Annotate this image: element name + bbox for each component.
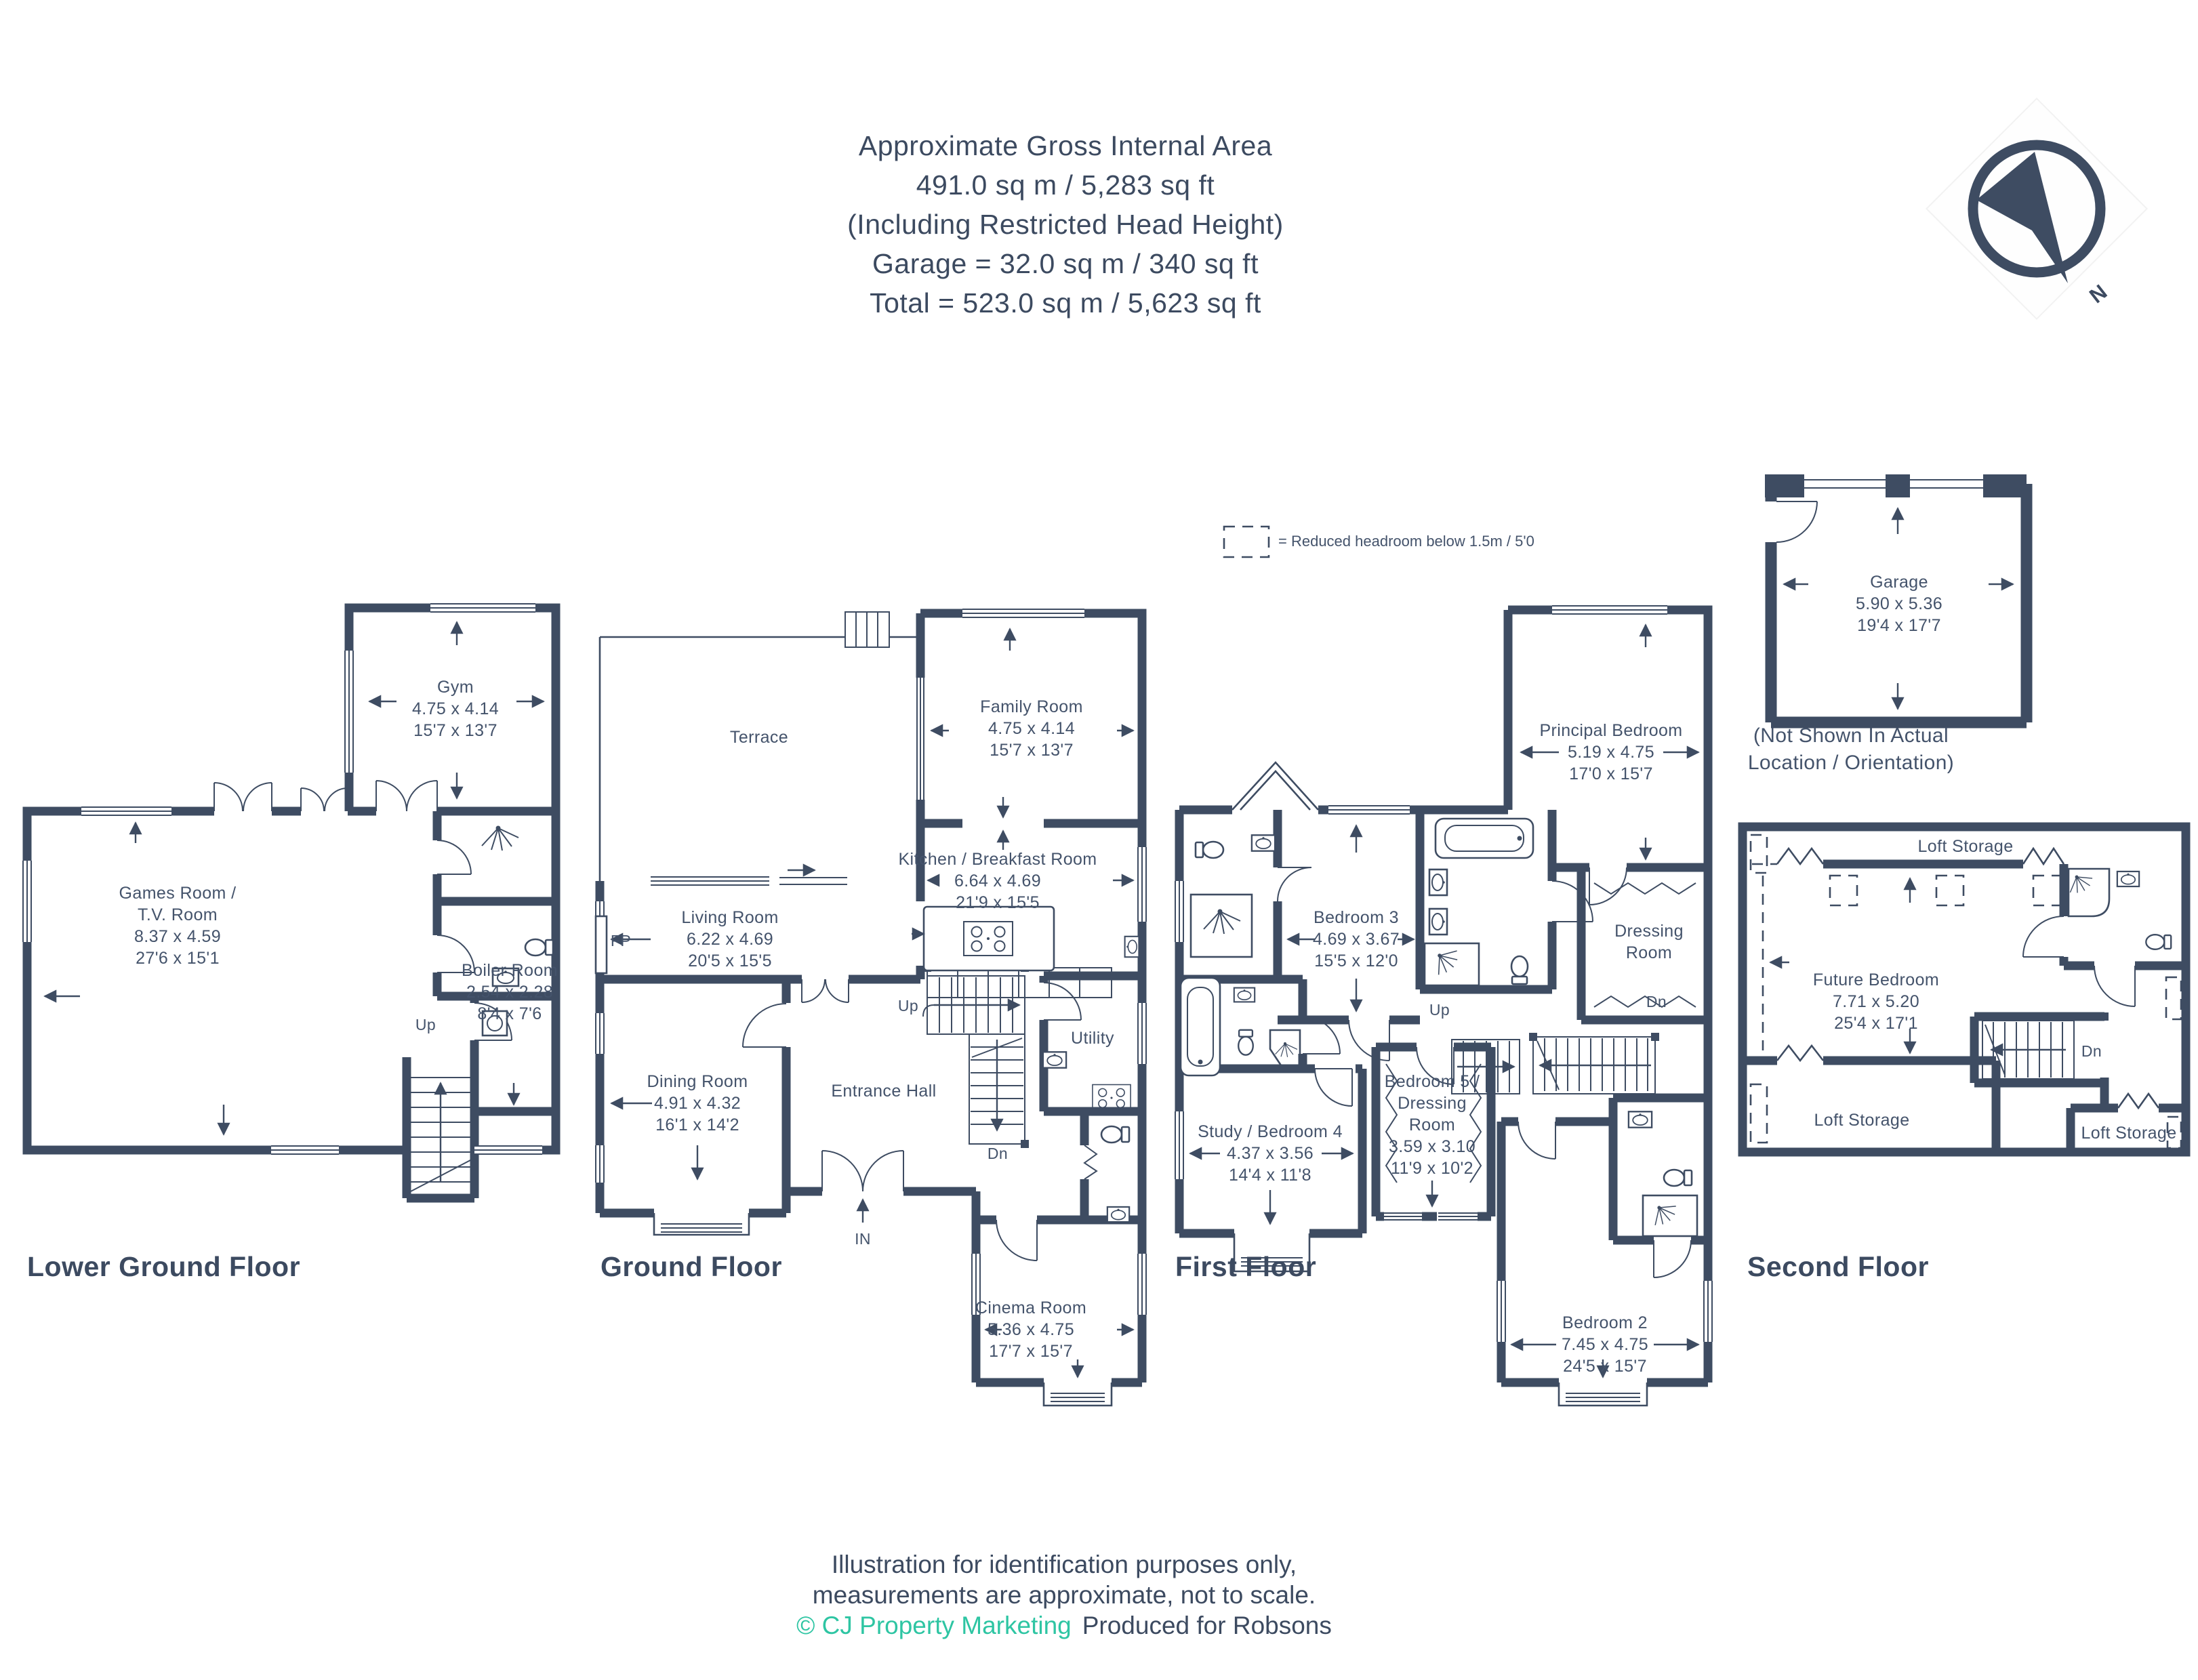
bath-icon <box>1436 819 1533 858</box>
floor-title-lower-ground: Lower Ground Floor <box>27 1251 300 1283</box>
floor-title-first: First Floor <box>1175 1251 1316 1283</box>
stairs-up-label: Up <box>1429 999 1450 1021</box>
sink-icon <box>1043 1052 1066 1067</box>
entry-in-label: IN <box>855 1228 871 1250</box>
lgf-stairs <box>408 1078 473 1191</box>
footer-produced-for: Produced for Robsons <box>1082 1612 1332 1639</box>
room-label-bedroom3: Bedroom 3 4.69 x 3.67 15'5 x 12'0 <box>1313 907 1400 972</box>
corner-shower <box>1270 1030 1300 1065</box>
room-label-bedroom2: Bedroom 2 7.45 x 4.75 24'5 x 15'7 <box>1562 1312 1648 1377</box>
floorplan-page: Approximate Gross Internal Area 491.0 sq… <box>0 0 2198 1680</box>
room-label-garage: Garage 5.90 x 5.36 19'4 x 17'7 <box>1856 571 1942 636</box>
header-line: Garage = 32.0 sq m / 340 sq ft <box>847 244 1284 283</box>
room-label-terrace: Terrace <box>730 726 788 748</box>
room-label-study-bedroom4: Study / Bedroom 4 4.37 x 3.56 14'4 x 11'… <box>1198 1121 1343 1186</box>
sink-icon <box>1429 909 1447 935</box>
room-label-bedroom5: Bedroom 5 / Dressing Room 3.59 x 3.10 11… <box>1385 1071 1480 1179</box>
room-label-cinema-room: Cinema Room 5.36 x 4.75 17'7 x 15'7 <box>975 1297 1086 1362</box>
ff-porch-gable <box>1232 762 1318 810</box>
room-label-loft-storage-br: Loft Storage <box>2081 1122 2176 1144</box>
shower-tray <box>1643 1195 1697 1236</box>
ff-stairs <box>1452 1033 1659 1094</box>
fireplace-icon <box>596 916 607 973</box>
room-label-utility: Utility <box>1071 1027 1114 1049</box>
header-line: 491.0 sq m / 5,283 sq ft <box>847 165 1284 205</box>
toilet-icon <box>1511 956 1528 984</box>
room-label-dressing-room: Dressing Room <box>1614 920 1684 964</box>
shower-icon <box>1276 1042 1297 1057</box>
shower-tray <box>1425 943 1479 985</box>
shower-tray <box>1191 895 1252 957</box>
toilet-icon <box>1238 1030 1253 1055</box>
header-line: (Including Restricted Head Height) <box>847 205 1284 244</box>
footer-disclaimer-line1: Illustration for identification purposes… <box>832 1549 1297 1580</box>
room-label-dining-room: Dining Room 4.91 x 4.32 16'1 x 14'2 <box>647 1071 748 1136</box>
shower-icon <box>482 826 518 851</box>
room-label-entrance-hall: Entrance Hall <box>831 1080 936 1102</box>
toilet-icon <box>1101 1126 1129 1143</box>
room-label-games-room: Games Room / T.V. Room 8.37 x 4.59 27'6 … <box>119 882 237 969</box>
room-label-loft-storage-bl: Loft Storage <box>1814 1109 1909 1131</box>
toilet-icon <box>1664 1170 1692 1186</box>
toilet-icon <box>1196 842 1223 858</box>
stairs-dn-label: Dn <box>988 1143 1008 1164</box>
fireplace-label: FP <box>611 930 631 951</box>
room-label-principal-bedroom: Principal Bedroom 5.19 x 4.75 17'0 x 15'… <box>1539 720 1682 785</box>
sink-icon <box>2117 872 2139 886</box>
room-label-living-room: Living Room 6.22 x 4.69 20'5 x 15'5 <box>681 907 778 972</box>
footer-credit-line: © CJ Property MarketingProduced for Robs… <box>796 1610 1332 1641</box>
room-label-kitchen: Kitchen / Breakfast Room 6.64 x 4.69 21'… <box>898 848 1097 914</box>
room-label-future-bedroom: Future Bedroom 7.71 x 5.20 25'4 x 17'1 <box>1813 969 1939 1034</box>
stairs-dn-label: Dn <box>1646 991 1667 1012</box>
header-line: Approximate Gross Internal Area <box>847 126 1284 165</box>
plan-second-floor <box>1743 827 2186 1152</box>
header-line: Total = 523.0 sq m / 5,623 sq ft <box>847 283 1284 323</box>
room-label-gym: Gym 4.75 x 4.14 15'7 x 13'7 <box>412 676 499 741</box>
stairs-up-label: Up <box>898 995 918 1017</box>
floor-title-second: Second Floor <box>1747 1251 1929 1283</box>
footer-credit: © CJ Property Marketing <box>796 1612 1072 1639</box>
bath-icon <box>1181 978 1220 1075</box>
garage-caption: (Not Shown In Actual Location / Orientat… <box>1748 722 1954 777</box>
footer-disclaimer-line2: measurements are approximate, not to sca… <box>813 1580 1316 1610</box>
compass-icon <box>1926 98 2146 319</box>
room-label-loft-storage-top: Loft Storage <box>1917 836 2013 857</box>
sink-icon <box>1629 1111 1652 1127</box>
sink-icon <box>1107 1207 1129 1222</box>
room-label-boiler-room: Boiler Room 2.54 x 2.28 8'4 x 7'6 <box>462 960 558 1025</box>
room-label-family-room: Family Room 4.75 x 4.14 15'7 x 13'7 <box>980 696 1083 761</box>
legend-text: = Reduced headroom below 1.5m / 5'0 <box>1278 533 1534 550</box>
floor-title-ground: Ground Floor <box>601 1251 782 1283</box>
sink-icon <box>1429 869 1447 895</box>
shower-tray <box>2069 869 2109 916</box>
shower-icon <box>2065 871 2095 896</box>
garage-door <box>1776 501 1817 542</box>
legend-swatch <box>1224 527 1269 557</box>
sink-icon <box>1234 988 1255 1002</box>
sink-icon <box>1252 835 1275 851</box>
gf-kitchen-island <box>924 907 1054 970</box>
stairs-up-label: Up <box>415 1014 436 1036</box>
header-area-summary: Approximate Gross Internal Area 491.0 sq… <box>847 126 1284 323</box>
toilet-icon <box>2146 935 2171 949</box>
stairs-dn-label: Dn <box>2081 1040 2102 1062</box>
gf-terrace-outline <box>600 637 920 881</box>
toilet-icon <box>525 939 553 956</box>
sink-icon <box>1125 937 1139 957</box>
